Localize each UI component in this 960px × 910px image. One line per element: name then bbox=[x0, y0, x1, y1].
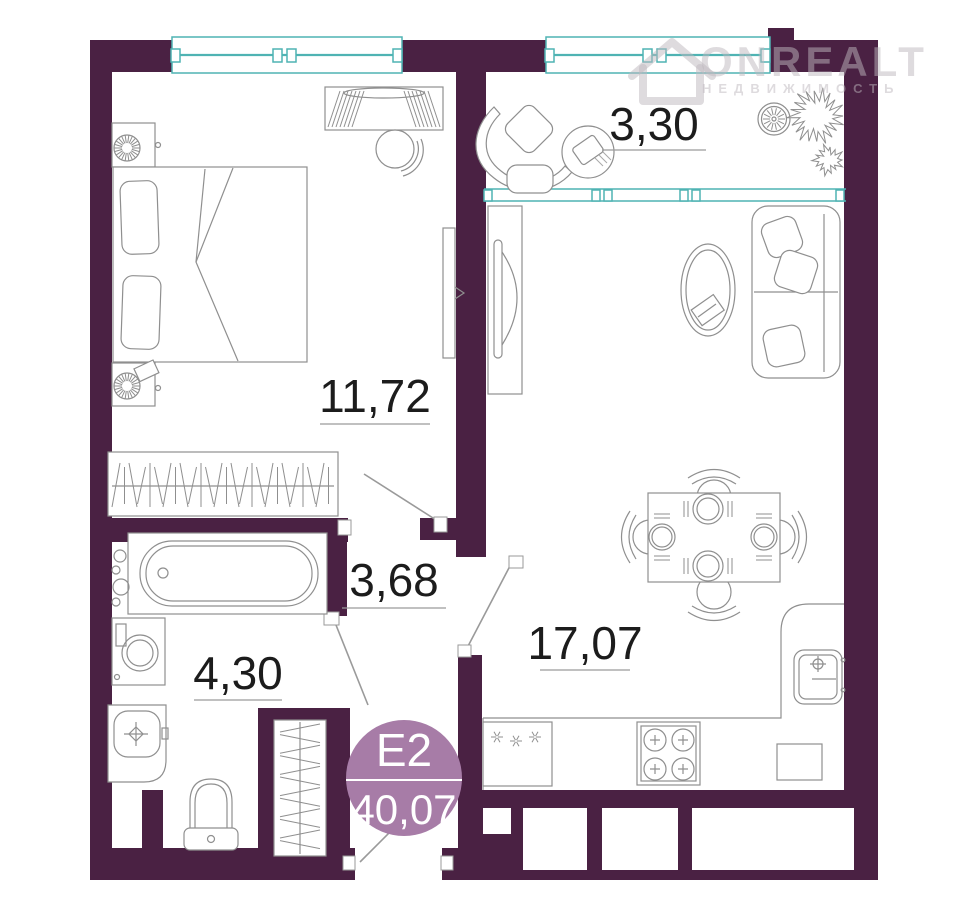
room-label-living-kitchen: 17,07 bbox=[527, 617, 642, 669]
fridge bbox=[483, 722, 552, 786]
room-label-hallway: 3,68 bbox=[349, 554, 439, 606]
wall-bath-east bbox=[325, 542, 347, 616]
wall-top-left bbox=[90, 40, 178, 72]
room-label-bedroom: 11,72 bbox=[319, 370, 431, 422]
wall-right bbox=[844, 40, 878, 850]
room-label-bathroom: 4,30 bbox=[193, 647, 283, 699]
unit-badge: Е2 40,07 bbox=[346, 720, 462, 836]
chair-seat bbox=[376, 130, 414, 168]
wall-closet-top bbox=[258, 708, 350, 720]
shaft-3 bbox=[602, 808, 678, 870]
pillow bbox=[121, 275, 162, 349]
lounge-chair-back bbox=[502, 102, 556, 156]
toilet-base bbox=[184, 828, 238, 850]
washing-machine bbox=[112, 618, 165, 685]
wall-closet-west bbox=[258, 708, 274, 854]
living-furniture bbox=[488, 206, 840, 394]
door-bathroom bbox=[334, 620, 368, 705]
kitchen-cabinet bbox=[777, 744, 822, 780]
shaft-1 bbox=[483, 808, 511, 834]
floor-plan-page: 3,30 11,72 3,68 4,30 17,07 Е2 40,07 ONRE… bbox=[0, 0, 960, 910]
toilet-lid bbox=[190, 779, 232, 830]
knob bbox=[156, 143, 161, 148]
tv-bedroom bbox=[443, 228, 455, 358]
tv-screen bbox=[494, 240, 502, 358]
shaft-2 bbox=[523, 808, 587, 870]
door-hinge bbox=[458, 645, 471, 657]
watermark-brand: ONREALT bbox=[700, 38, 928, 85]
knob bbox=[156, 386, 161, 391]
window-bedroom bbox=[171, 37, 402, 73]
pillow bbox=[120, 180, 160, 254]
wall-niche bbox=[142, 790, 163, 850]
shaft-4 bbox=[692, 808, 854, 870]
wall-shafts bbox=[483, 808, 854, 870]
door-hinge bbox=[434, 517, 447, 532]
plant-center bbox=[772, 117, 776, 121]
dining-set bbox=[622, 470, 807, 621]
lounge-chair-cushion bbox=[507, 165, 553, 193]
bedroom-furniture bbox=[108, 87, 464, 516]
door-hinge bbox=[343, 856, 355, 870]
dining-table bbox=[648, 493, 780, 582]
wall-top-mid bbox=[400, 40, 546, 72]
watermark-tagline: НЕДВИЖИМОСТЬ bbox=[702, 81, 900, 96]
sofa-pillow bbox=[761, 323, 806, 368]
room-label-balcony: 3,30 bbox=[609, 98, 699, 150]
door-hinge bbox=[441, 856, 453, 870]
door-hinge bbox=[509, 556, 523, 568]
door-living bbox=[466, 566, 510, 650]
door-bedroom bbox=[364, 474, 444, 525]
potted-plant bbox=[758, 103, 790, 135]
door-hinge bbox=[338, 520, 351, 535]
unit-code: Е2 bbox=[376, 724, 432, 776]
floor-plan: 3,30 11,72 3,68 4,30 17,07 Е2 40,07 ONRE… bbox=[0, 0, 960, 910]
unit-total-area: 40,07 bbox=[351, 786, 456, 833]
